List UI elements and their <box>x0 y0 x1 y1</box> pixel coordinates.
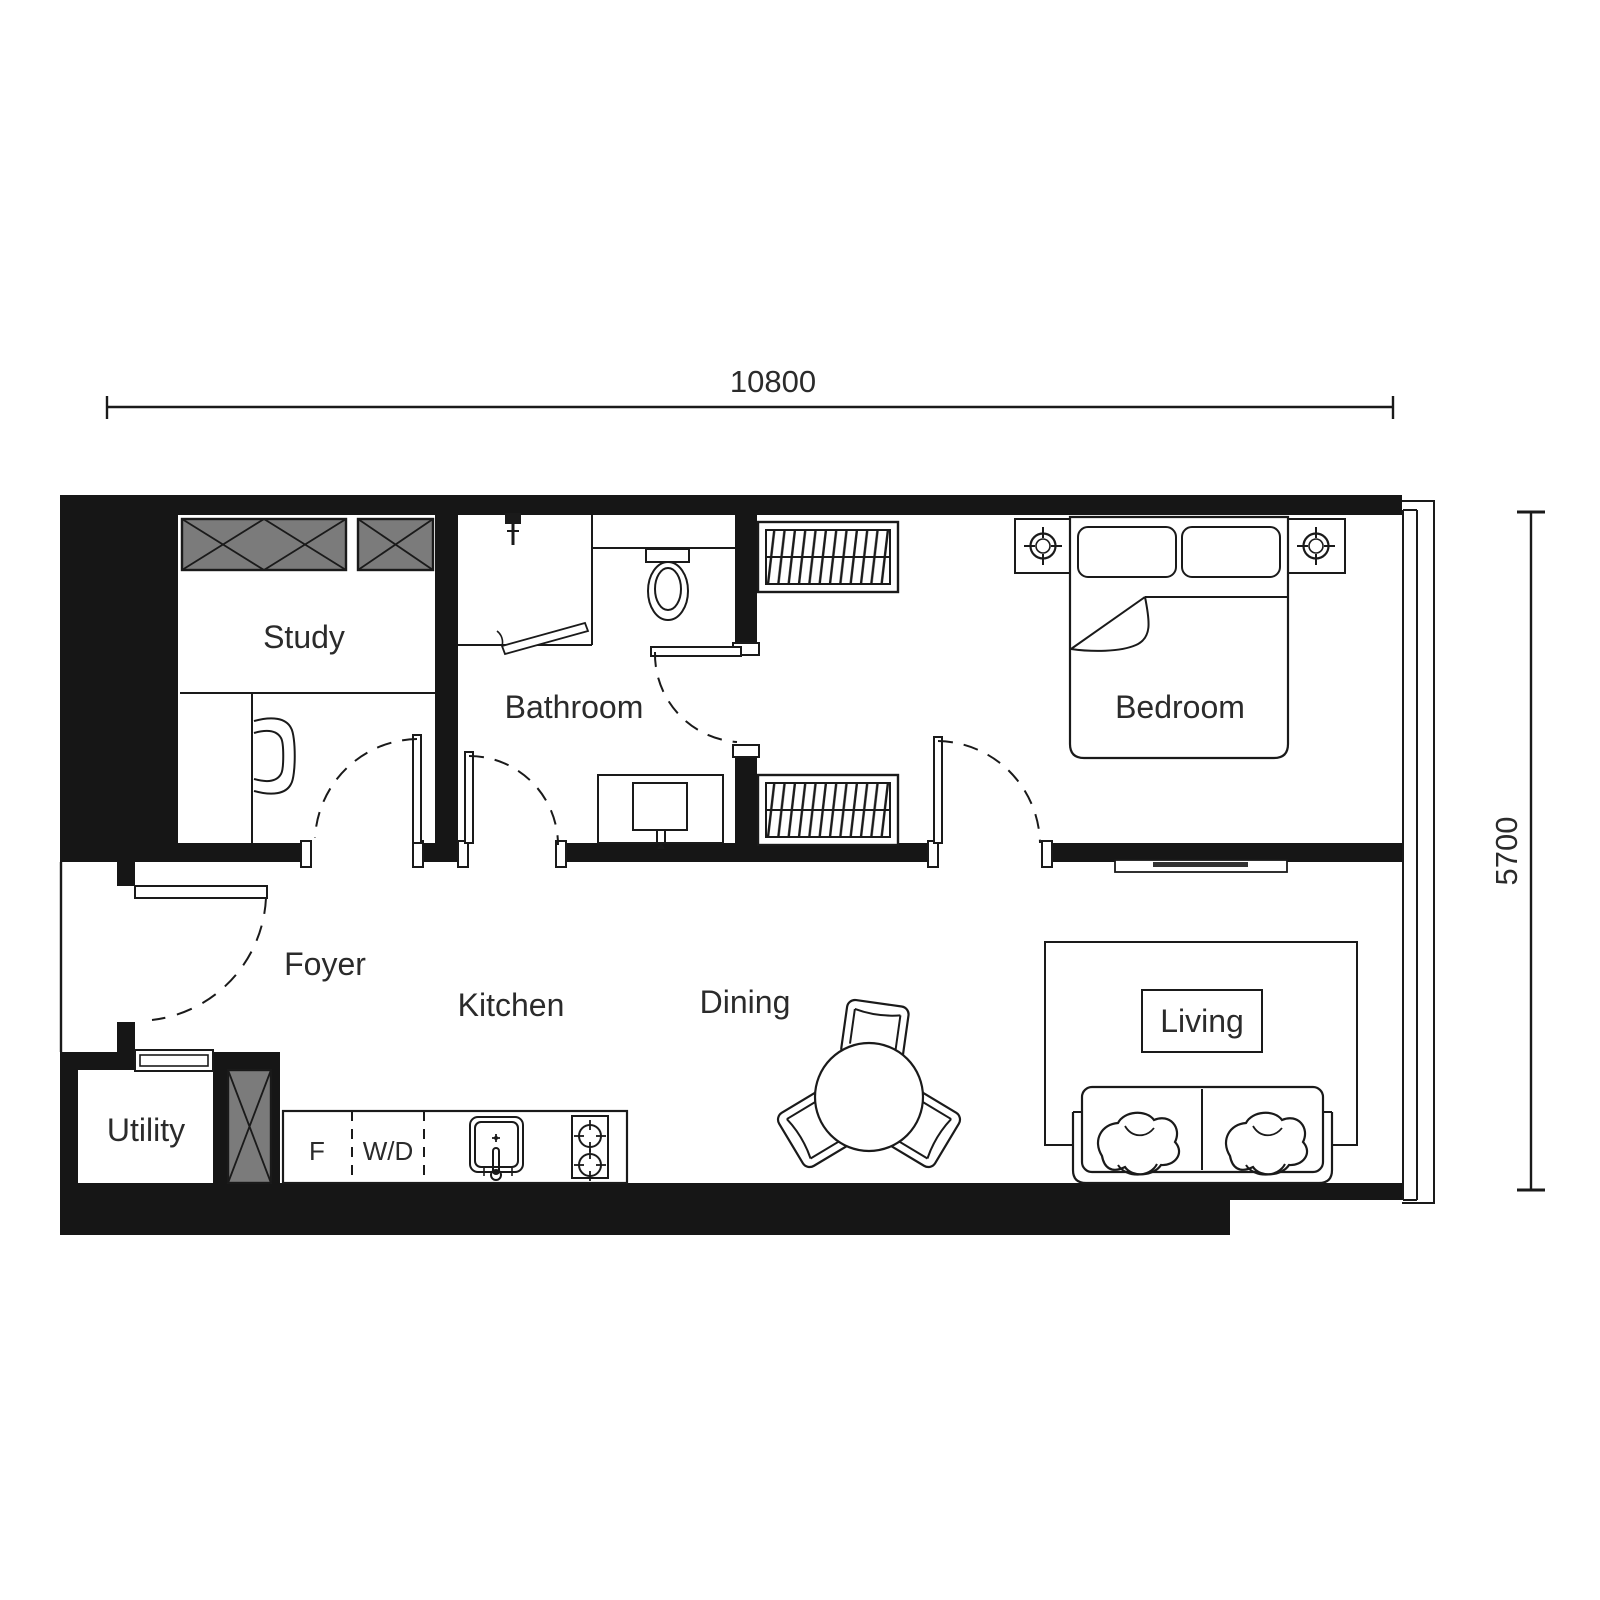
shower-door-leaf <box>502 623 588 654</box>
room-label-bathroom: Bathroom <box>505 689 644 725</box>
wall-bathroom-closet-lower <box>735 745 757 843</box>
wall-study-bathroom <box>435 515 458 843</box>
door-jamb <box>733 745 759 757</box>
room-label-kitchen: Kitchen <box>458 987 565 1023</box>
kitchen-sink-symbol <box>470 1117 523 1180</box>
room-label-bedroom: Bedroom <box>1115 689 1245 725</box>
pillow <box>1078 527 1176 577</box>
door-jamb <box>458 841 468 867</box>
utility-vent-symbol <box>135 1050 213 1071</box>
dimension-width-label: 10800 <box>730 364 816 399</box>
living-label-box: Living <box>1142 990 1262 1052</box>
fridge-label: F <box>309 1136 325 1166</box>
bathroom-door-corridor <box>458 752 566 867</box>
living-area: Living <box>1045 860 1357 1183</box>
study-cabinet-symbol <box>182 519 433 570</box>
wardrobe-top-symbol <box>758 522 898 592</box>
wall-corridor-a <box>178 843 306 862</box>
room-label-study: Study <box>263 619 345 655</box>
door-leaf <box>651 647 741 656</box>
door-jamb <box>413 841 423 867</box>
room-label-living: Living <box>1160 1003 1244 1039</box>
door-leaf <box>413 735 421 843</box>
shower-head-icon <box>505 513 521 524</box>
service-shaft-symbol <box>228 1070 271 1183</box>
nightstand-left <box>1015 519 1072 573</box>
door-leaf <box>135 886 267 898</box>
wall-utility-divider <box>213 1070 228 1183</box>
door-swing-arc <box>655 652 737 742</box>
wall-entry-stub-top <box>117 862 135 886</box>
tv-console-symbol <box>1115 860 1287 872</box>
toilet-symbol <box>646 549 689 620</box>
dining-table-symbol <box>815 1043 923 1151</box>
door-swing-arc <box>315 739 417 838</box>
study-door <box>301 735 423 867</box>
door-leaf <box>465 752 473 843</box>
study-room: Study <box>180 519 435 843</box>
stove-symbol <box>572 1116 608 1181</box>
door-jamb <box>1042 841 1052 867</box>
desk-chair-symbol <box>254 718 295 793</box>
bathroom-room: Bathroom <box>458 513 735 849</box>
room-label-dining: Dining <box>700 984 791 1020</box>
wall-entry-stub-bottom <box>117 1022 135 1052</box>
entry-door <box>135 886 267 1020</box>
dimension-right: 5700 <box>1489 512 1545 1190</box>
wardrobe-bottom-symbol <box>758 775 898 845</box>
floor-plan-page: 10800 5700 <box>0 0 1600 1600</box>
wall-shaft-right <box>271 1070 280 1183</box>
floor-plan-canvas: 10800 5700 <box>0 0 1600 1600</box>
sofa-symbol <box>1073 1087 1332 1183</box>
door-swing-arc <box>469 756 558 845</box>
dimension-top: 10800 <box>107 364 1393 419</box>
desk-symbol <box>180 693 435 843</box>
door-jamb <box>928 841 938 867</box>
door-jamb <box>301 841 311 867</box>
room-label-foyer: Foyer <box>284 946 366 982</box>
wall-bottom-thick <box>60 1183 1230 1235</box>
kitchen-area: F W/D Kitchen <box>283 987 627 1183</box>
bathroom-door-bedroom <box>651 643 759 757</box>
dining-area: Dining <box>700 984 963 1170</box>
window-wall <box>1402 501 1434 1203</box>
nightstand-right <box>1288 519 1345 573</box>
pillow <box>1182 527 1280 577</box>
wall-utility-left <box>60 1070 78 1183</box>
door-swing-arc <box>938 741 1040 843</box>
wall-bathroom-closet-upper <box>735 515 757 655</box>
washer-dryer-label: W/D <box>363 1136 414 1166</box>
dimension-height-label: 5700 <box>1489 817 1524 886</box>
wall-left-block <box>60 495 178 862</box>
room-label-utility: Utility <box>107 1112 185 1148</box>
shower-symbol <box>458 513 592 654</box>
wall-top <box>60 495 1402 515</box>
door-leaf <box>934 737 942 843</box>
wall-bottom-thin <box>1230 1183 1402 1200</box>
vanity-sink-symbol <box>598 775 723 849</box>
bedroom-door <box>928 737 1052 867</box>
bedroom-room: Bedroom <box>758 517 1345 845</box>
door-swing-arc <box>152 898 266 1020</box>
